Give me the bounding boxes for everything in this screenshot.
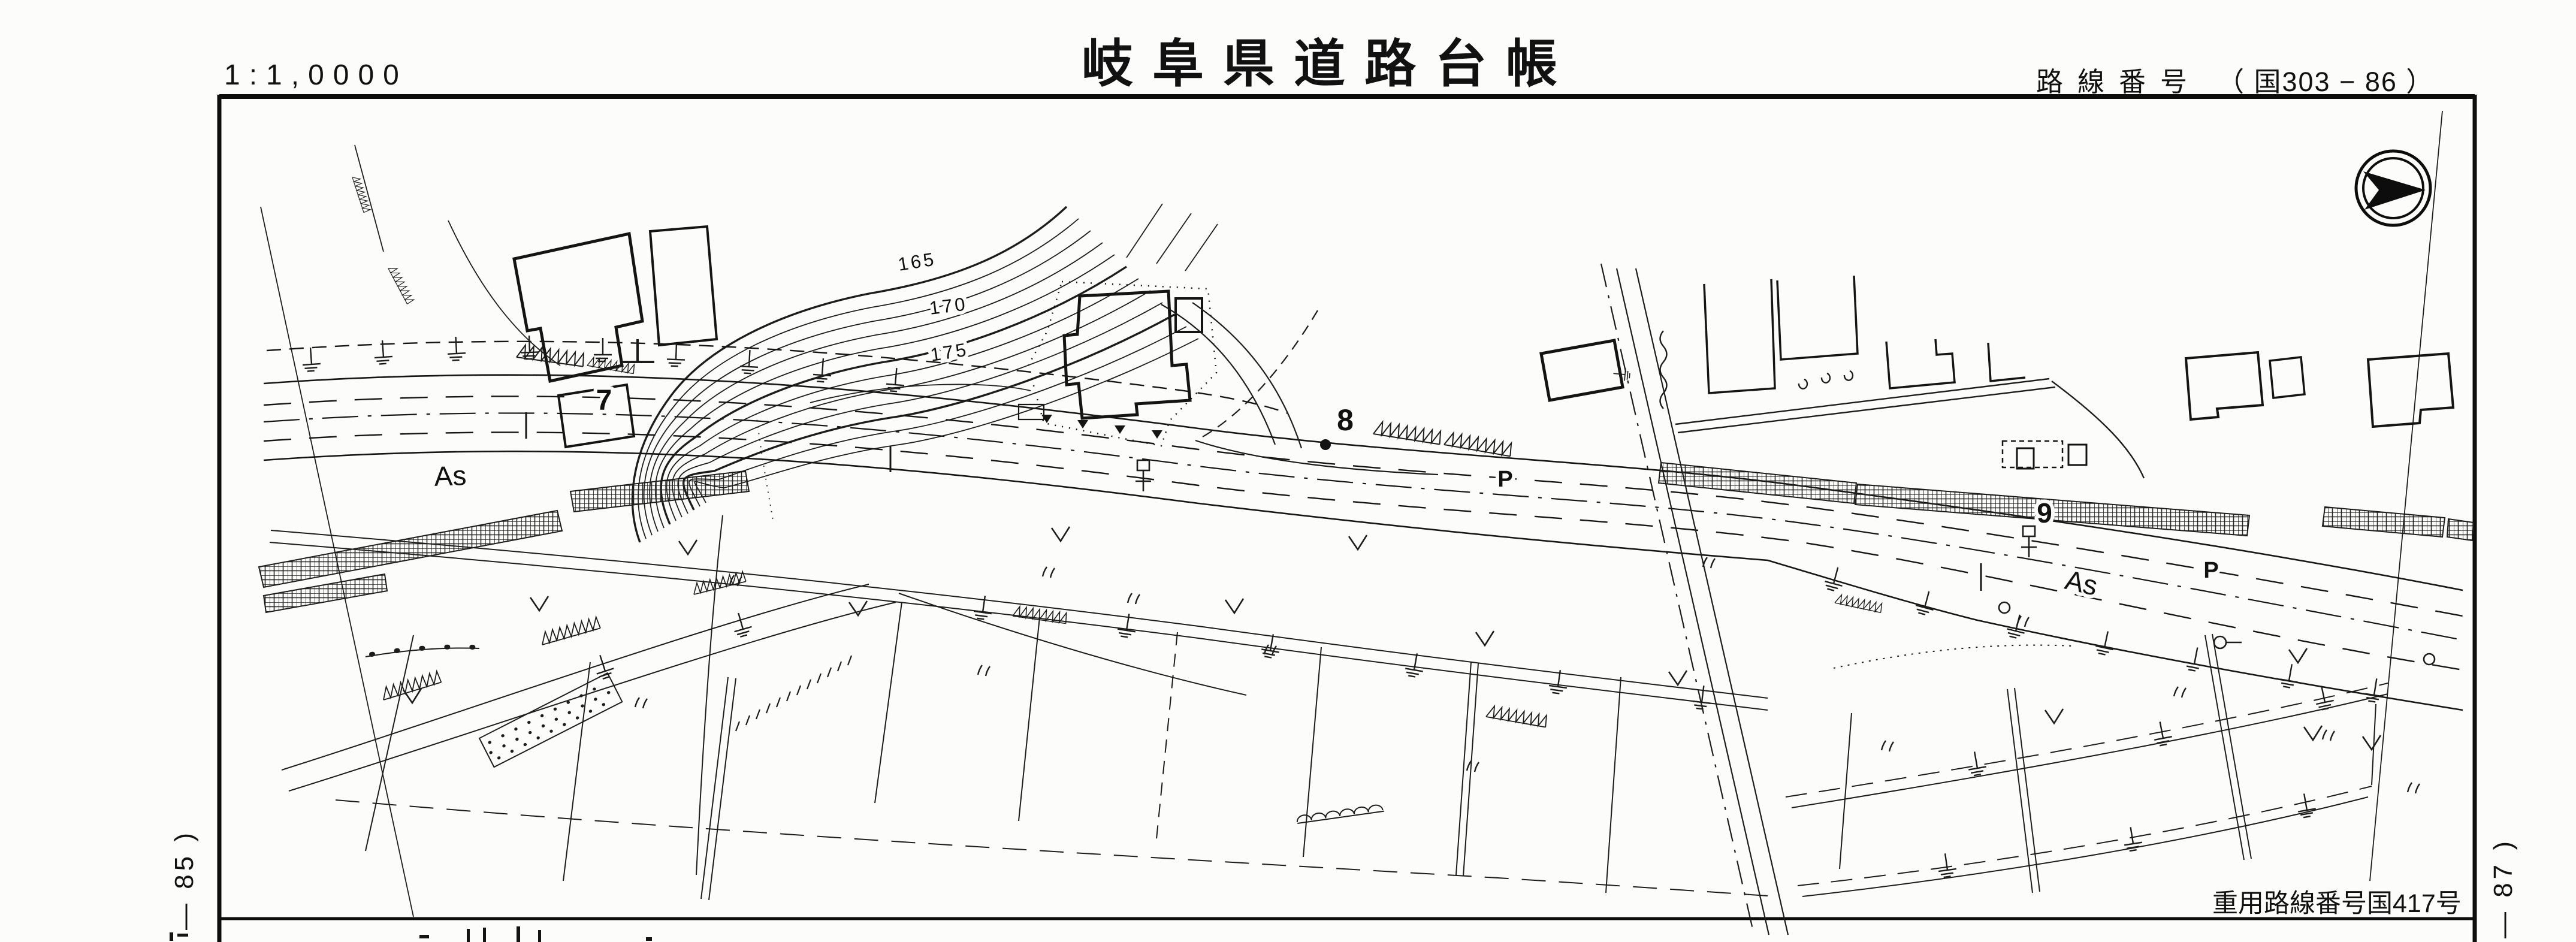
station-label-8: 8 xyxy=(1337,403,1354,437)
bottom-cutoff-fragments xyxy=(170,926,652,942)
station-label-9: 9 xyxy=(2037,497,2052,529)
surface-label-as-1: As xyxy=(434,460,467,492)
adjacent-sheet-left: — 85 ) xyxy=(170,829,199,930)
point-label-p-1: P xyxy=(1497,467,1512,492)
station-label-7: 7 xyxy=(596,385,612,416)
south-parcels xyxy=(270,145,2388,900)
map-scale: 1:1,0000 xyxy=(224,59,408,91)
route-number-value: （ 国303 − 86 ） xyxy=(2217,67,2434,97)
route-number-label: 路線番号 xyxy=(2036,67,2201,97)
ground-v-marks xyxy=(403,527,2381,750)
overlap-route-note: 重用路線番号国417号 xyxy=(2212,889,2462,918)
contour-label-165: 165 xyxy=(896,248,937,275)
point-label-p-2: P xyxy=(2203,558,2218,583)
contour-label-170: 170 xyxy=(928,293,969,319)
vegetation-hooks xyxy=(1660,331,2145,478)
page-title: 岐阜県道路台帳 xyxy=(1082,35,1577,93)
contour-label-group: 165 170 175 xyxy=(896,248,970,366)
road-ledger-sheet: 1:1,0000 岐阜県道路台帳 路線番号 （ 国303 − 86 ） 165 … xyxy=(0,0,2576,942)
ledger-map-canvas: 1:1,0000 岐阜県道路台帳 路線番号 （ 国303 − 86 ） 165 … xyxy=(0,0,2576,942)
buildings xyxy=(514,227,2453,469)
slope-hatch-strips xyxy=(352,175,1883,727)
adjacent-sheet-right: — 87 ) xyxy=(2489,838,2518,938)
surface-label-as-2: As xyxy=(2062,564,2101,602)
grass-ii-marks xyxy=(635,557,2420,793)
north-arrow-icon xyxy=(2356,151,2430,225)
